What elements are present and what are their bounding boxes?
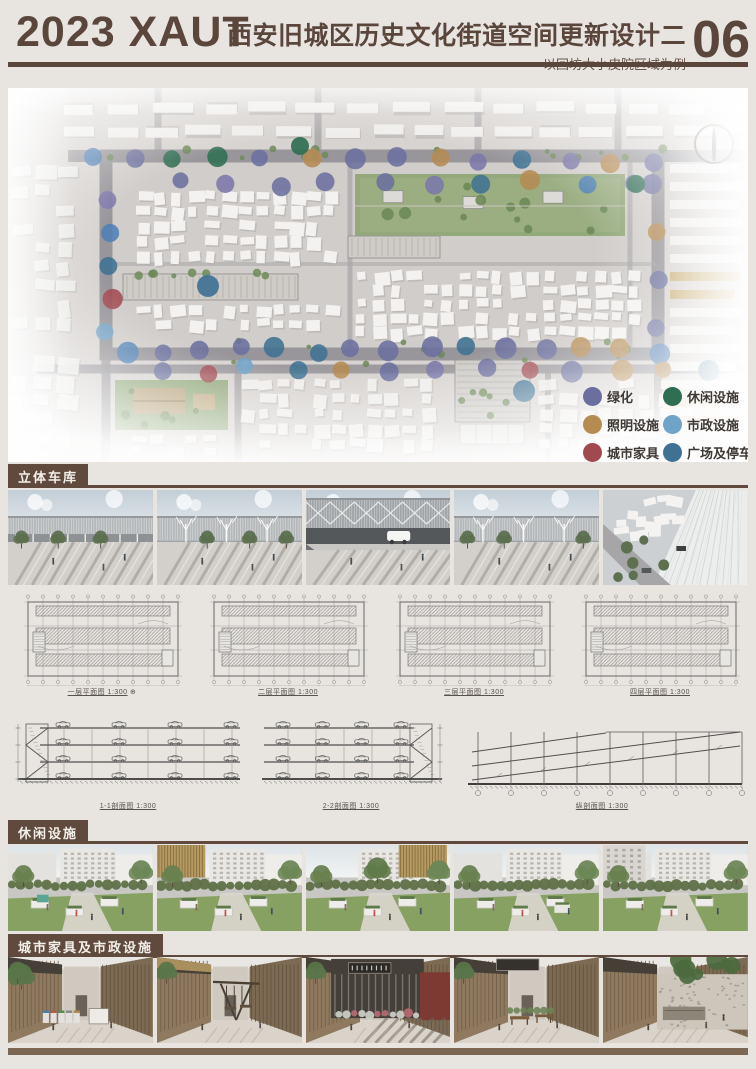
legend-item: 市政设施: [663, 415, 748, 434]
section-title: 立体车库: [8, 464, 88, 488]
legend-item: 照明设施: [583, 415, 659, 434]
render-photo: [454, 490, 599, 585]
legend-item: 绿化: [583, 387, 659, 406]
garage-floor-plan: 二层平面图 1:300: [198, 594, 378, 697]
legend-dot-icon: [583, 415, 602, 434]
legend-label: 广场及停车: [687, 443, 748, 462]
render-photo: [157, 490, 302, 585]
legend-label: 休闲设施: [687, 387, 739, 406]
plan-caption: 二层平面图 1:300: [198, 687, 378, 697]
header-rule: [8, 62, 748, 67]
render-photo: [454, 845, 599, 931]
section-tab-furniture: 城市家具及市政设施: [8, 934, 748, 958]
section-title: 城市家具及市政设施: [8, 934, 163, 958]
render-photo: [603, 845, 748, 931]
legend-item: 休闲设施: [663, 387, 748, 406]
page-title: 西安旧城区历史文化街道空间更新设计二: [227, 16, 686, 52]
section-tab-leisure: 休闲设施: [8, 820, 748, 844]
logo: 2023 XAUT: [16, 8, 250, 57]
legend-dot-icon: [663, 443, 682, 462]
legend-label: 市政设施: [687, 415, 739, 434]
legend-label: 照明设施: [607, 415, 659, 434]
garage-drawings: 一层平面图 1:300 ⊕ 二层平面图 1:300 三层平面图 1:300 四层…: [8, 592, 748, 818]
furniture-photo-strip: [8, 957, 748, 1043]
garage-photo-strip: [8, 490, 748, 585]
legend-item: 广场及停车: [663, 443, 748, 462]
plan-caption: 一层平面图 1:300 ⊕: [12, 687, 192, 697]
legend-dot-icon: [583, 387, 602, 406]
render-photo: [157, 957, 302, 1043]
render-photo: [306, 490, 451, 585]
footer-bar: [8, 1048, 748, 1055]
section-caption: 纵剖面图 1:300: [456, 801, 748, 811]
leisure-photo-strip: [8, 845, 748, 931]
render-photo: [8, 845, 153, 931]
render-photo: [157, 845, 302, 931]
render-photo: [603, 490, 748, 585]
section-caption: 1-1剖面图 1:300: [12, 801, 244, 811]
section-title: 休闲设施: [8, 820, 88, 844]
garage-section-drawing: 2-2剖面图 1:300: [256, 712, 446, 811]
legend-dot-icon: [583, 443, 602, 462]
garage-floor-plan: 三层平面图 1:300: [384, 594, 564, 697]
section-tab-garage: 立体车库: [8, 464, 748, 488]
render-photo: [306, 845, 451, 931]
legend-label: 城市家具: [607, 443, 659, 462]
masterplan-image: 绿化照明设施城市家具休闲设施市政设施广场及停车: [8, 88, 748, 462]
garage-ramp-section-drawing: 纵剖面图 1:300: [456, 720, 748, 811]
render-photo: [8, 957, 153, 1043]
render-photo: [306, 957, 451, 1043]
legend-label: 绿化: [607, 387, 633, 406]
plan-legend: 绿化照明设施城市家具休闲设施市政设施广场及停车: [583, 387, 748, 462]
garage-section-drawing: 1-1剖面图 1:300: [12, 712, 244, 811]
garage-floor-plan: 一层平面图 1:300 ⊕: [12, 594, 192, 697]
plan-caption: 三层平面图 1:300: [384, 687, 564, 697]
legend-dot-icon: [663, 415, 682, 434]
render-photo: [603, 957, 748, 1043]
legend-item: 城市家具: [583, 443, 659, 462]
render-photo: [454, 957, 599, 1043]
garage-floor-plan: 四层平面图 1:300: [570, 594, 750, 697]
section-caption: 2-2剖面图 1:300: [256, 801, 446, 811]
render-photo: [8, 490, 153, 585]
page-number: 06: [692, 10, 750, 70]
legend-dot-icon: [663, 387, 682, 406]
plan-caption: 四层平面图 1:300: [570, 687, 750, 697]
